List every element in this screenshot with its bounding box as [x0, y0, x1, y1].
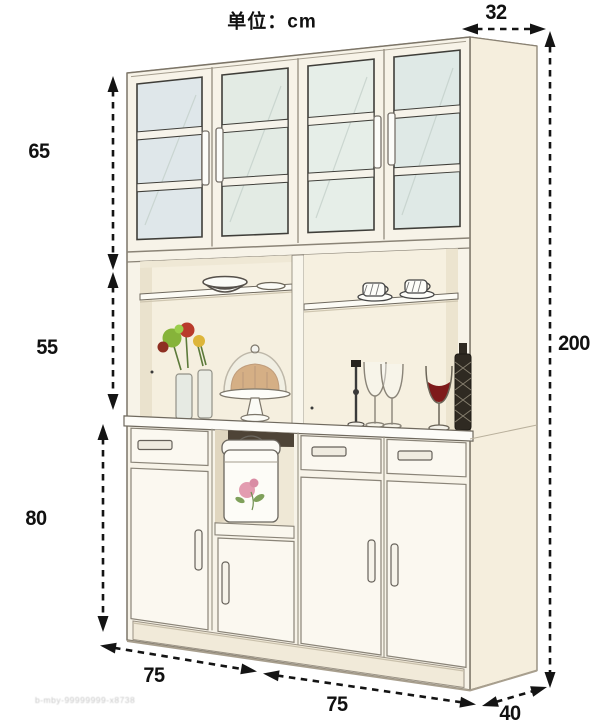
drawer-left [131, 428, 208, 465]
door-handle [222, 562, 229, 604]
wine-bottle [455, 343, 471, 430]
drawer-handle [398, 451, 432, 460]
glass-door-4 [394, 50, 460, 229]
decal-petal [250, 479, 259, 488]
glass-vase [176, 374, 192, 419]
door-handle [368, 540, 375, 582]
dim-label-bottom-right-width: 75 [326, 693, 347, 717]
dimension-arrow-65 [108, 76, 119, 270]
door-handle [216, 128, 223, 182]
glass-door-2 [222, 68, 288, 236]
door-left [131, 468, 208, 630]
plate [257, 283, 285, 290]
door-handle [202, 131, 209, 185]
compartment-back [304, 249, 458, 433]
shelf-peg-dot [151, 371, 154, 374]
dim-label-bottom-depth: 40 [499, 702, 520, 726]
compartment-left-wall [140, 261, 152, 419]
door-handle [388, 113, 395, 165]
door-handle [391, 544, 398, 586]
cup [363, 283, 385, 296]
furniture-dimension-diagram: 单位：cm 32 65 55 80 200 75 75 40 b-mby-999… [0, 0, 600, 726]
candlestick-top [351, 360, 361, 367]
dim-label-lower-height: 80 [25, 507, 46, 531]
middle-open-shelf [127, 248, 471, 433]
cabinet-side-face [470, 37, 537, 690]
door-handle [374, 116, 381, 168]
dimension-arrow-32 [462, 24, 546, 35]
dimension-arrow-55 [108, 272, 119, 410]
shelf-peg-dot [311, 407, 314, 410]
door-center [218, 538, 294, 642]
cup [405, 280, 427, 293]
dim-label-bottom-left-width: 75 [143, 664, 164, 688]
glass-door-3 [308, 59, 374, 233]
center-divider [292, 255, 304, 426]
unit-label: 单位：cm [227, 7, 316, 34]
watermark: b-mby-99999999-x8738 [35, 695, 135, 705]
bottle-body [455, 354, 471, 430]
drawer-mid-right [301, 436, 381, 474]
door-right [387, 481, 466, 668]
flower-yellow [193, 335, 205, 347]
candlestick-bulge [353, 389, 359, 395]
drawer-handle [138, 441, 172, 450]
drawer-handle [312, 447, 346, 456]
drawer-right [387, 439, 466, 476]
glass-pane [137, 77, 202, 240]
stand-foot [241, 415, 269, 422]
flower-bud [175, 325, 184, 334]
dim-label-upper-height: 65 [28, 140, 49, 164]
right-compartment [304, 249, 471, 433]
dim-label-total-height: 200 [558, 332, 590, 356]
glass-vase [198, 370, 212, 418]
rice-cooker [222, 436, 280, 522]
dim-label-middle-height: 55 [36, 336, 57, 360]
dimension-arrow-200 [545, 31, 556, 688]
dim-label-top-depth: 32 [485, 1, 506, 25]
dimension-arrow-80 [98, 424, 109, 632]
door-mid-right [301, 477, 381, 655]
glass-door-1 [137, 77, 202, 240]
door-handle [195, 530, 202, 570]
left-compartment [140, 255, 292, 425]
cabinet-illustration [0, 0, 600, 726]
flower-dark-red [158, 342, 169, 353]
